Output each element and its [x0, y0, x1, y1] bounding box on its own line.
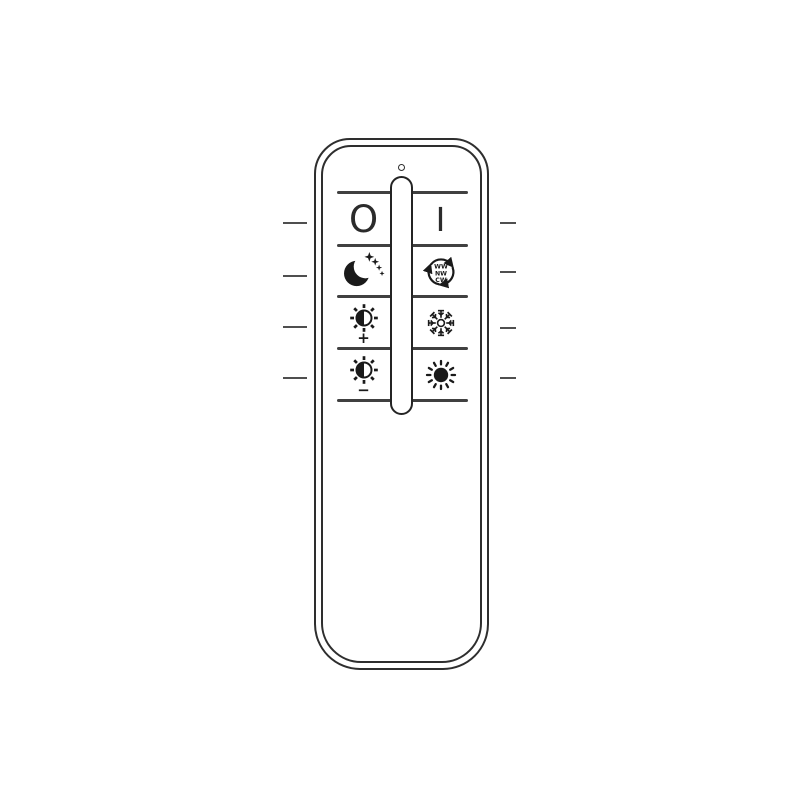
color-cycle-label-cw: CW	[435, 277, 447, 284]
off-button: O	[337, 194, 390, 244]
moon-stars-icon	[341, 252, 386, 291]
full-brightness-button	[413, 350, 468, 399]
minus-sign: −	[357, 386, 370, 394]
callout-line-right-1	[500, 222, 516, 224]
off-button-label: O	[349, 201, 378, 238]
night-mode-button	[337, 247, 390, 295]
callout-line-right-4	[500, 377, 516, 379]
center-slot	[390, 176, 413, 415]
led-indicator	[398, 164, 405, 171]
cool-white-button	[413, 298, 468, 347]
on-button-label: I	[436, 203, 446, 236]
callout-line-right-3	[500, 327, 516, 329]
snowflake-icon	[422, 304, 460, 342]
color-cycle-button: WW NW CW	[413, 247, 468, 295]
recycle-arrows-icon: WW NW CW	[418, 249, 464, 293]
callout-line-right-2	[500, 271, 516, 273]
brightness-down-button: −	[337, 350, 390, 399]
callout-line-left-4	[283, 377, 307, 379]
plus-sign: +	[357, 334, 370, 342]
callout-line-left-1	[283, 222, 307, 224]
diagram-canvas: O I WW NW CW	[0, 0, 800, 800]
sun-filled-icon	[424, 358, 458, 392]
brightness-up-button: +	[337, 298, 390, 347]
on-button: I	[413, 194, 468, 244]
callout-line-left-3	[283, 326, 307, 328]
callout-line-left-2	[283, 275, 307, 277]
